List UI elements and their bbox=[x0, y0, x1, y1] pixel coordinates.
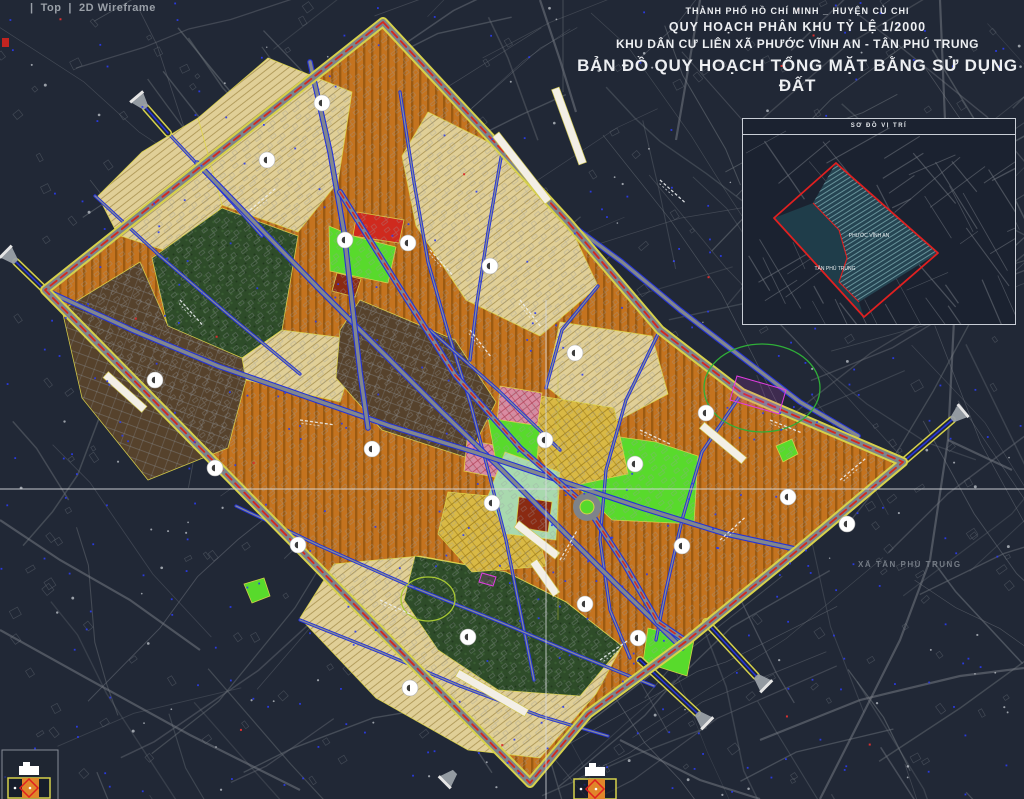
title-city-line: THÀNH PHỐ HỒ CHÍ MINH _ HUYỆN CỦ CHI bbox=[575, 6, 1020, 16]
viewport-visual-style-control[interactable]: 2D Wireframe bbox=[79, 2, 156, 14]
land-use-marker bbox=[259, 152, 275, 168]
land-use-marker bbox=[207, 460, 223, 476]
land-use-marker bbox=[484, 495, 500, 511]
land-use-marker bbox=[839, 516, 855, 532]
land-use-marker bbox=[337, 232, 353, 248]
land-use-marker bbox=[482, 258, 498, 274]
viewport-controls: |Top|2D Wireframe bbox=[30, 2, 163, 14]
land-use-marker bbox=[402, 680, 418, 696]
land-use-marker bbox=[364, 441, 380, 457]
context-commune-label: XÃ TÂN PHÚ TRUNG bbox=[858, 560, 962, 569]
land-use-marker bbox=[630, 630, 646, 646]
land-use-marker bbox=[780, 489, 796, 505]
land-use-marker bbox=[290, 537, 306, 553]
viewport-separator: | bbox=[68, 2, 72, 14]
inset-label-lower: TÂN PHÚ TRUNG bbox=[814, 265, 855, 272]
land-use-marker bbox=[674, 538, 690, 554]
viewport-view-control[interactable]: Top bbox=[41, 2, 62, 14]
location-inset-map: PHƯỚC VĨNH AN TÂN PHÚ TRUNG SƠ ĐỒ VỊ TRÍ bbox=[742, 118, 1016, 325]
autocad-drawing-area[interactable]: PHƯỚC VĨNH AN TÂN PHÚ TRUNG SƠ ĐỒ VỊ TRÍ… bbox=[0, 0, 1024, 799]
land-use-marker bbox=[147, 372, 163, 388]
land-use-marker bbox=[577, 596, 593, 612]
land-use-marker bbox=[627, 456, 643, 472]
land-use-marker bbox=[400, 235, 416, 251]
land-use-marker bbox=[314, 95, 330, 111]
land-use-marker bbox=[537, 432, 553, 448]
land-use-marker bbox=[698, 405, 714, 421]
map-title: BẢN ĐỒ QUY HOẠCH TỔNG MẶT BẰNG SỬ DỤNG Đ… bbox=[575, 56, 1020, 96]
title-area-name: KHU DÂN CƯ LIÊN XÃ PHƯỚC VĨNH AN - TÂN P… bbox=[575, 37, 1020, 51]
corner-stamp bbox=[2, 750, 58, 799]
viewport-separator: | bbox=[30, 2, 34, 14]
title-plan-type: QUY HOẠCH PHÂN KHU TỶ LỆ 1/2000 bbox=[575, 20, 1020, 34]
land-use-marker bbox=[567, 345, 583, 361]
inset-label-upper: PHƯỚC VĨNH AN bbox=[849, 232, 890, 239]
land-use-marker bbox=[460, 629, 476, 645]
inset-title: SƠ ĐỒ VỊ TRÍ bbox=[743, 119, 1015, 135]
drawing-title-block: THÀNH PHỐ HỒ CHÍ MINH _ HUYỆN CỦ CHI QUY… bbox=[575, 6, 1020, 96]
